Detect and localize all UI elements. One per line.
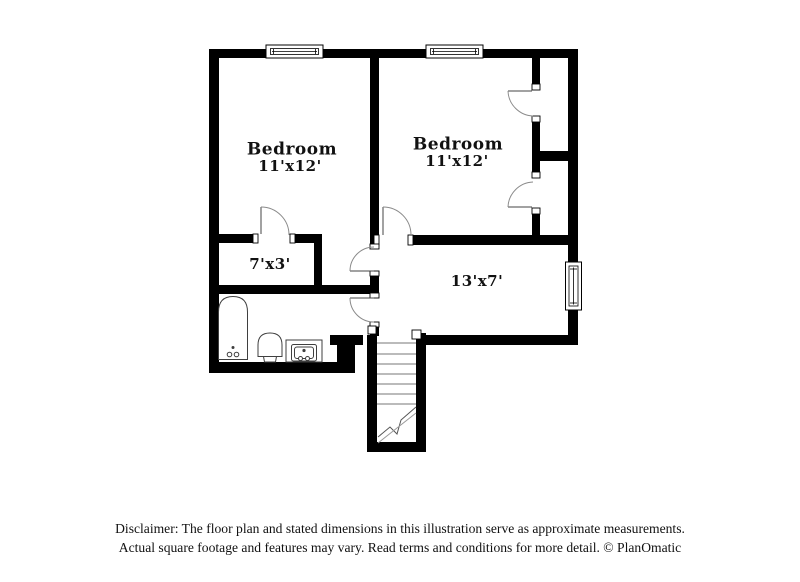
disclaimer-text: Disclaimer: The floor plan and stated di… <box>0 519 800 557</box>
sink-vanity <box>286 340 322 362</box>
door-bedroom-right <box>383 207 411 235</box>
bathroom-fixtures <box>219 297 323 363</box>
staircase <box>377 343 416 443</box>
bathtub <box>219 297 248 360</box>
room-dims-closet: 7'x3' <box>249 256 291 273</box>
wall-stair-bottom <box>367 442 426 452</box>
wall-left <box>209 49 219 373</box>
walls <box>209 49 578 452</box>
stair-break-line-2 <box>378 413 416 443</box>
room-dims-bedroom-right: 11'x12' <box>425 153 488 170</box>
wall-bath-south <box>209 362 355 373</box>
room-dims-hall: 13'x7' <box>451 273 503 290</box>
room-dims-bedroom-left: 11'x12' <box>258 158 321 175</box>
stair-break-line <box>378 407 416 437</box>
door-jambs <box>253 84 540 339</box>
window-bedroom-left <box>266 45 323 58</box>
door-hall-to-vestibule <box>350 247 374 271</box>
window-hall-east <box>566 262 582 310</box>
door-closet-upper <box>508 91 533 116</box>
wall-stair-left <box>367 335 377 452</box>
wall-bedroom-left-bottom-a <box>219 234 258 243</box>
wall-closet-divider <box>540 151 568 161</box>
wall-stair-right <box>416 333 426 452</box>
wall-hall-bottom-right <box>426 335 568 345</box>
wall-top <box>209 49 578 58</box>
door-closet-lower <box>508 182 533 207</box>
window-bedroom-right <box>426 45 483 58</box>
wall-central-stub-a <box>370 276 379 293</box>
disclaimer-line-1: Disclaimer: The floor plan and stated di… <box>115 521 685 536</box>
wall-bedroom-divider <box>370 58 379 244</box>
floor-plan-drawing <box>0 0 800 582</box>
wall-closet-partition-b <box>532 122 540 178</box>
floor-plan-canvas: Bedroom 11'x12' Bedroom 11'x12' 7'x3' 13… <box>0 0 800 582</box>
disclaimer-line-2: Actual square footage and features may v… <box>119 540 681 555</box>
toilet <box>258 333 282 362</box>
door-hall-to-bathroom <box>350 298 374 322</box>
door-bedroom-left <box>261 207 289 235</box>
wall-bath-north <box>219 285 370 294</box>
wall-hall-top <box>413 235 568 245</box>
